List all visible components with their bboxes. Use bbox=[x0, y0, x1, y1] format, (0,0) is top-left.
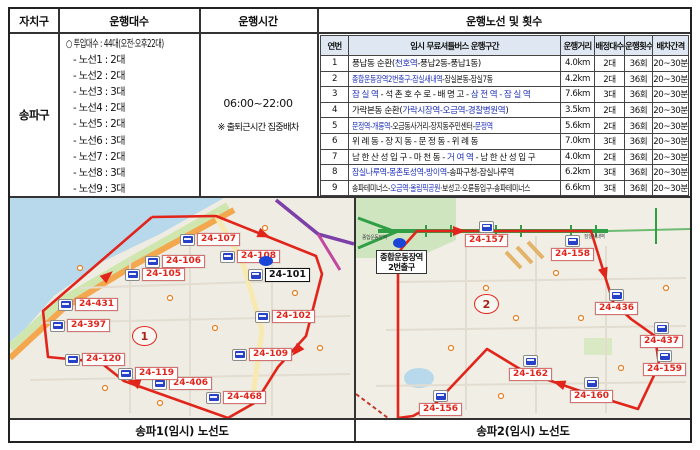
bus-icon bbox=[523, 355, 538, 367]
bus-icon bbox=[118, 368, 133, 380]
operating-hours: 06:00~22:00 ※ 출퇴근시간 집중배차 bbox=[200, 34, 316, 196]
route-number-badge: 2 bbox=[474, 294, 499, 314]
route-row: 8잠실나루역-몽촌토성역-방이역-송파구청-잠실나루역6.2km3대36회20~… bbox=[321, 165, 689, 181]
bus-stop-24-431: 24-431 bbox=[58, 298, 118, 311]
bus-icon bbox=[609, 289, 624, 301]
route-table-body: 1풍납동 순환(천호역-풍납2동-풍납1동)4.0km2대36회20~30분2종… bbox=[321, 56, 689, 196]
bus-icon bbox=[220, 251, 235, 263]
stop-id-label: 24-397 bbox=[67, 319, 110, 332]
stop-id-label: 24-107 bbox=[197, 233, 240, 246]
fleet-total: ○ 투입대수 : 44대(오전·오후22대) bbox=[66, 37, 198, 53]
bus-stop-24-468: 24-468 bbox=[206, 391, 266, 404]
route-row: 4가락본동 순환(가락시장역-오금역-경찰병원역)3.5km2대36회20~30… bbox=[321, 102, 689, 118]
document: 자치구 운행대수 운행시간 운행노선 및 횟수 송파구 ○ 투입대수 : 44대… bbox=[0, 0, 700, 450]
stop-id-label: 24-437 bbox=[640, 335, 683, 348]
bus-icon bbox=[180, 234, 195, 246]
fleet-line: - 노선3 : 3대 bbox=[66, 85, 198, 101]
bus-stop-24-158: 24-158 bbox=[551, 235, 594, 261]
stop-id-label: 24-102 bbox=[272, 310, 315, 323]
stop-id-label: 24-120 bbox=[82, 353, 125, 366]
col-interval: 배차간격 bbox=[653, 36, 689, 56]
col-buses: 배정대수 bbox=[595, 36, 625, 56]
hours-note: ※ 출퇴근시간 집중배차 bbox=[217, 119, 298, 133]
route-row: 2종합운동장역2번출구-잠실새내역-잠실본동-잠실7동4.2km2대36회20~… bbox=[321, 71, 689, 87]
bus-icon bbox=[206, 392, 221, 404]
fleet-line: - 노선2 : 2대 bbox=[66, 69, 198, 85]
bus-stop-24-156: 24-156 bbox=[419, 390, 462, 416]
route-number-badge: 1 bbox=[132, 326, 157, 346]
fleet-line: - 노선4 : 2대 bbox=[66, 101, 198, 117]
bus-stop-24-119: 24-119 bbox=[118, 367, 178, 380]
stop-id-label: 24-156 bbox=[419, 403, 462, 416]
stop-id-label: 24-159 bbox=[643, 363, 686, 376]
route-row: 9송파테미너스-오금역·올림픽공원·보성고·오륜동입구-송파테미너스6.6km3… bbox=[321, 180, 689, 196]
stop-id-label: 24-101 bbox=[265, 268, 310, 282]
bus-stop-24-436: 24-436 bbox=[595, 289, 638, 315]
bus-icon bbox=[433, 390, 448, 402]
map2-caption: 송파2(임시) 노선도 bbox=[356, 420, 690, 441]
fleet-line: - 노선7 : 2대 bbox=[66, 150, 198, 166]
header-routes-title: 운행노선 및 횟수 bbox=[318, 9, 690, 32]
route-row: 3잠실역-석촌호수로-배명고-삼전역-잠실역7.6km3대36회20~30분 bbox=[321, 87, 689, 103]
header-hours: 운행시간 bbox=[200, 9, 316, 32]
bus-icon bbox=[248, 269, 263, 281]
fleet-list: ○ 투입대수 : 44대(오전·오후22대) - 노선1 : 2대- 노선2 :… bbox=[60, 34, 198, 196]
stop-id-label: 24-119 bbox=[135, 367, 178, 380]
bus-icon bbox=[50, 320, 65, 332]
stop-id-label: 24-106 bbox=[162, 255, 205, 268]
map1-caption: 송파1(임시) 노선도 bbox=[10, 420, 354, 441]
bus-icon bbox=[65, 354, 80, 366]
stop-id-label: 24-158 bbox=[551, 248, 594, 261]
bus-stop-24-120: 24-120 bbox=[65, 353, 125, 366]
map-divider bbox=[354, 198, 356, 441]
stop-id-label: 24-436 bbox=[595, 302, 638, 315]
route-row: 7남한산성입구-마천동-거여역-남한산성입구4.0km2대36회20~30분 bbox=[321, 149, 689, 165]
start-point-label: 종합운동장역 2번출구 bbox=[376, 250, 427, 274]
col-distance: 운행거리 bbox=[561, 36, 595, 56]
fleet-line: - 노선1 : 2대 bbox=[66, 53, 198, 69]
route-row: 5문정역-개롱역-오금동사거리-장지동주민센터-문정역5.6km2대36회20~… bbox=[321, 118, 689, 134]
bus-stop-24-157: 24-157 bbox=[465, 221, 508, 247]
start-point-dot bbox=[393, 238, 406, 248]
bus-icon bbox=[255, 311, 270, 323]
col-trips: 운행횟수 bbox=[625, 36, 653, 56]
bus-stop-24-101: 24-101 bbox=[248, 268, 310, 282]
divider bbox=[199, 9, 201, 196]
fleet-line: - 노선5 : 2대 bbox=[66, 117, 198, 133]
stop-id-label: 24-105 bbox=[142, 268, 185, 281]
col-no: 연번 bbox=[321, 36, 349, 56]
district-name: 송파구 bbox=[10, 34, 58, 196]
route-table-header: 연번 임시 무료셔틀버스 운행구간 운행거리 배정대수 운행횟수 배차간격 bbox=[321, 36, 689, 56]
route-row: 1풍납동 순환(천호역-풍납2동-풍납1동)4.0km2대36회20~30분 bbox=[321, 56, 689, 72]
stop-id-label: 24-162 bbox=[509, 368, 552, 381]
map2-canvas bbox=[356, 198, 690, 419]
bus-icon bbox=[657, 350, 672, 362]
bus-icon bbox=[125, 269, 140, 281]
bus-stop-24-102: 24-102 bbox=[255, 310, 315, 323]
bus-stop-24-105: 24-105 bbox=[125, 268, 185, 281]
fleet-line: - 노선6 : 3대 bbox=[66, 134, 198, 150]
station-label: 종합운동장역 bbox=[362, 234, 387, 241]
current-stop-dot bbox=[259, 256, 273, 266]
route-table: 연번 임시 무료셔틀버스 운행구간 운행거리 배정대수 운행횟수 배차간격 1풍… bbox=[320, 35, 689, 196]
stop-id-label: 24-431 bbox=[75, 298, 118, 311]
map-panel-2: 종합운동장역 2번출구 종합운동장역 잠실새내역 2 24-15724-1582… bbox=[356, 198, 690, 419]
header-divider bbox=[10, 32, 690, 34]
stop-id-label: 24-468 bbox=[223, 391, 266, 404]
document-frame: 자치구 운행대수 운행시간 운행노선 및 횟수 송파구 ○ 투입대수 : 44대… bbox=[8, 7, 692, 443]
header-district: 자치구 bbox=[10, 9, 58, 32]
map-panel-1: 1 24-10724-10624-10524-10824-10124-10224… bbox=[10, 198, 354, 419]
bus-icon bbox=[479, 221, 494, 233]
bus-icon bbox=[145, 256, 160, 268]
table-bottom-divider bbox=[10, 196, 690, 198]
bus-stop-24-162: 24-162 bbox=[509, 355, 552, 381]
hours-time: 06:00~22:00 bbox=[223, 97, 292, 110]
route-row: 6위례동-장지동-문정동-위례동7.0km3대36회20~30분 bbox=[321, 133, 689, 149]
divider bbox=[317, 9, 319, 196]
stop-id-label: 24-160 bbox=[570, 390, 613, 403]
bus-icon bbox=[654, 322, 669, 334]
bus-stop-24-109: 24-109 bbox=[232, 348, 292, 361]
bus-stop-24-159: 24-159 bbox=[643, 350, 686, 376]
bus-icon bbox=[584, 377, 599, 389]
bus-stop-24-160: 24-160 bbox=[570, 377, 613, 403]
fleet-line: - 노선8 : 3대 bbox=[66, 166, 198, 182]
divider bbox=[58, 9, 60, 196]
bus-stop-24-437: 24-437 bbox=[640, 322, 683, 348]
bus-stop-24-106: 24-106 bbox=[145, 255, 205, 268]
col-section: 임시 무료셔틀버스 운행구간 bbox=[349, 36, 561, 56]
stop-id-label: 24-109 bbox=[249, 348, 292, 361]
bus-icon bbox=[565, 235, 580, 247]
header-fleet: 운행대수 bbox=[60, 9, 198, 32]
bus-icon bbox=[58, 299, 73, 311]
bus-stop-24-397: 24-397 bbox=[50, 319, 110, 332]
bus-icon bbox=[232, 349, 247, 361]
bus-stop-24-107: 24-107 bbox=[180, 233, 240, 246]
stop-id-label: 24-157 bbox=[465, 234, 508, 247]
